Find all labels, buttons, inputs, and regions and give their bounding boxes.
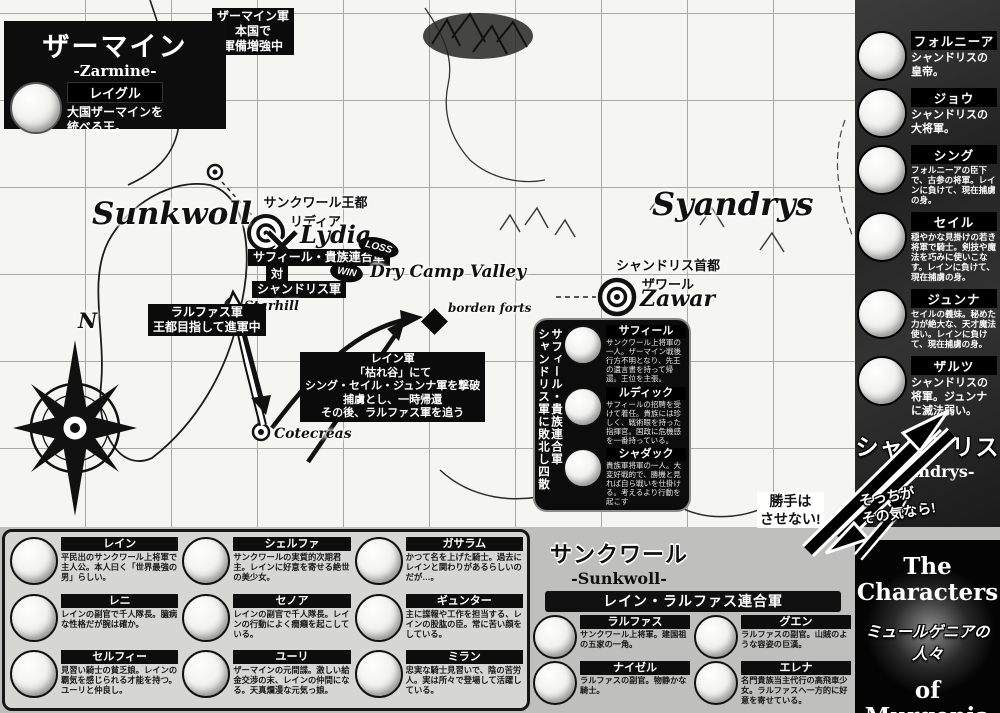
character-desc-reni: レインの副官で千人隊長。臆病な性格だが腕は確か。 [61,609,178,629]
nobles-entry-safir: サフィール サンクワール上将軍の一人。ザーマイン戦後行方不明となり、先王の遺言書… [563,325,686,383]
nobles-title-line1: サフィール・貴族連合軍 [549,328,562,506]
character-desc-gasaram: かつて名を上げた騎士。過去にレインと関わりがあるらしいのだが…。 [406,552,523,582]
character-desc-elena: 名門貴族当主代行の高飛車少女。ラルファスへ一方的に好意を寄せている。 [741,676,851,705]
nobles-alliance-box: サフィール・貴族連合軍 シャンドリス軍に敗北し四散 サフィール サンクワール上将… [533,318,691,512]
character-desc-reigle: 大国ザーマインを 統べる王。 [67,105,163,135]
entry-gwen: グエン ラルファスの副官。山賊のような容姿の巨漢。 [694,615,851,660]
entry-yuri: ユーリ ザーマインの元間諜。激しい給金交渉の末、レインの仲間になる。天真爛漫な元… [182,650,350,705]
region-label-syandrys: Syandrys [652,185,814,223]
portrait-gunter [355,594,403,642]
portrait-gwen [694,615,738,659]
portrait-miran [355,650,403,698]
syandrys-sidebar: フォルニーア シャンドリスの皇帝。 ジョウ シャンドリスの大将軍。 シング フォ… [855,0,1000,540]
character-desc-rain: 平民出のサンクワール上将軍で主人公。本人曰く「世界最強の男」らしい。 [61,552,178,582]
entry-gasaram: ガサラム かつて名を上げた騎士。過去にレインと関わりがあるらしいのだが…。 [355,537,523,592]
character-name-rain: レイン [61,537,178,551]
character-desc-gunter: 主に諜報や工作を担当する、レインの股肱の臣。常に苦い顔をしている。 [406,609,523,639]
character-name-safir: サフィール [606,325,686,338]
sunkwoll-subtitle: -Sunkwoll- [535,569,703,588]
rain-ralphas-grid: ラルファス サンクワール上将軍。建国祖の五家の一角。 グエン ラルファスの副官。… [533,615,851,711]
character-name-yuri: ユーリ [233,650,350,664]
character-desc-yuri: ザーマインの元間諜。激しい給金交渉の末、レインの仲間になる。天真爛漫な元気っ娘。 [233,665,350,695]
sunkwoll-character-panel: レイン 平民出のサンクワール上将軍で主人公。本人曰く「世界最強の男」らしい。 シ… [2,529,530,711]
character-desc-naizel: ラルファスの副官。物静かな騎士。 [580,676,690,696]
character-name-gunter: ギュンター [406,594,523,608]
portrait-reigle [10,82,62,134]
portrait-serufi [10,650,58,698]
rain-ralphas-title-bar: レイン・ラルファス連合軍 [545,591,841,612]
sidebar-entry-jou: ジョウ シャンドリスの大将軍。 [855,85,1000,142]
character-name-gasaram: ガサラム [406,537,523,551]
nobles-vertical-title: サフィール・貴族連合軍 シャンドリス軍に敗北し四散 [535,320,563,510]
portrait-gasaram [355,537,403,585]
character-desc-senoa: レインの副官で千人隊長。レインの行動によく癇癪を起こしている。 [233,609,350,639]
character-name-rudick: ルディック [606,387,686,400]
character-desc-ralphas: サンクワール上将軍。建国祖の五家の一角。 [580,630,690,650]
note-rain-army: レイン軍 「枯れ谷」にて シング・セイル・ジュンナ軍を撃破 捕虜とし、一時帰還 … [300,352,485,422]
portrait-junna [857,289,907,339]
nobles-entry-rudick: ルディック サフィールの招聘を受けて着任。貴族には珍しく、戦術眼を持った指揮官。… [563,387,686,445]
mountain-mass [423,13,533,59]
character-name-shadack: シャダック [606,448,686,461]
entry-serufi: セルフィー 見習い騎士の貧乏娘。レインの覇気を感じられる才能を持つ。ユーリと仲良… [10,650,178,705]
entry-gunter: ギュンター 主に諜報や工作を担当する、レインの股肱の臣。常に苦い顔をしている。 [355,594,523,649]
portrait-rain [10,537,58,585]
nobles-entry-shadack: シャダック 貴族軍将軍の一人。大変好戦的で、勝機と見れば自ら戦いを仕掛ける。考え… [563,448,686,506]
place-label-dry-camp-valley: Dry Camp Valley [370,262,526,282]
entry-reni: レニ レインの副官で千人隊長。臆病な性格だが腕は確か。 [10,594,178,649]
compass-n-label: N [78,308,97,333]
sidebar-entry-junna: ジュンナ セイルの義妹。秘めた力が絶大な、天才魔法使い。レインに負けて、現在捕虜… [855,286,1000,353]
zarmine-subtitle: -Zarmine- [4,64,226,79]
character-name-fornia: フォルニーア [911,31,997,50]
sidebar-entry-zarts: ザルツ シャンドリスの将軍。ジュンナに滅法弱い。 [855,353,1000,422]
entry-sherufa: シェルファ サンクワールの実質的次期君主。レインに好意を寄せる絶世の美少女。 [182,537,350,592]
portrait-fornia [857,31,907,81]
battle-side-b-label: シャンドリス軍 [252,281,346,298]
footer-title-en-bottom: of Murgenia [855,678,1000,713]
character-name-sherufa: シェルファ [233,537,350,551]
character-name-gwen: グエン [741,615,851,629]
footer-title-en-top: The Characters [855,554,1000,606]
character-name-senoa: セノア [233,594,350,608]
syandrys-title: シャンドリス [855,428,1000,462]
character-desc-shadack: 貴族軍将軍の一人。大変好戦的で、勝機と見れば自ら戦いを仕掛ける。考えるより行動を… [606,461,686,506]
note-ralphas-army: ラルファス軍 王都目指して進軍中 [148,304,266,336]
zarmine-infobox: ザーマイン -Zarmine- レイグル 大国ザーマインを 統べる王。 [4,21,226,129]
entry-ralphas: ラルファス サンクワール上将軍。建国祖の五家の一角。 [533,615,690,660]
fort-marker-diamond [421,308,448,335]
character-name-seil: セイル [911,212,997,231]
portrait-elena [694,661,738,705]
portrait-safir [563,325,603,365]
zarmine-title: ザーマイン [4,25,226,64]
character-name-zarts: ザルツ [911,356,997,375]
character-desc-jou: シャンドリスの大将軍。 [911,108,997,136]
footer-title-jp: ミュールゲニアの人々 [855,620,1000,664]
character-name-reigle: レイグル [67,82,163,103]
nobles-title-line2: シャンドリス軍に敗北し四散 [536,328,549,506]
character-desc-safir: サンクワール上将軍の一人。ザーマイン戦後行方不明となり、先王の遺言書を持って帰還… [606,338,686,383]
sunkwoll-title: サンクワール [535,537,703,569]
entry-elena: エレナ 名門貴族当主代行の高飛車少女。ラルファスへ一方的に好意を寄せている。 [694,661,851,712]
character-name-miran: ミラン [406,650,523,664]
character-desc-shing: フォルニーアの臣下で、古参の将軍。レインに負けて、現在捕虜の身。 [911,165,997,205]
character-name-reni: レニ [61,594,178,608]
entry-naizel: ナイゼル ラルファスの副官。物静かな騎士。 [533,661,690,712]
place-label-borden-forts: borden forts [448,301,531,315]
character-desc-junna: セイルの義妹。秘めた力が絶大な、天才魔法使い。レインに負けて、現在捕虜の身。 [911,309,997,349]
character-desc-miran: 忠実な騎士見習いで、陰の苦労人。実は所々で登場して活躍している。 [406,665,523,695]
character-desc-gwen: ラルファスの副官。山賊のような容姿の巨漢。 [741,630,851,650]
character-name-naizel: ナイゼル [580,661,690,675]
character-name-serufi: セルフィー [61,650,178,664]
character-name-shing: シング [911,145,997,164]
portrait-shadack [563,448,603,488]
portrait-zarts [857,356,907,406]
portrait-seil [857,212,907,262]
portrait-ralphas [533,615,577,659]
region-label-sunkwoll: Sunkwoll [92,196,252,232]
character-name-junna: ジュンナ [911,289,997,308]
entry-senoa: セノア レインの副官で千人隊長。レインの行動によく癇癪を起こしている。 [182,594,350,649]
speech-bubble-left: 勝手は させない! [757,492,824,528]
sunkwoll-heading: サンクワール -Sunkwoll- [535,537,703,588]
character-name-jou: ジョウ [911,88,997,107]
character-name-ralphas: ラルファス [580,615,690,629]
portrait-naizel [533,661,577,705]
entry-rain: レイン 平民出のサンクワール上将軍で主人公。本人曰く「世界最強の男」らしい。 [10,537,178,592]
character-desc-seil: 穏やかな見掛けの若き将軍で騎士。剣技や魔法を巧みに使いこなす。レインに負けて、現… [911,232,997,282]
compass-rose [13,340,137,516]
sidebar-entry-shing: シング フォルニーアの臣下で、古参の将軍。レインに負けて、現在捕虜の身。 [855,142,1000,209]
portrait-sherufa [182,537,230,585]
coastline-east [837,120,852,235]
sidebar-entry-fornia: フォルニーア シャンドリスの皇帝。 [855,28,1000,85]
capital-label-zawar-en: Zawar [640,286,715,312]
character-desc-fornia: シャンドリスの皇帝。 [911,51,997,79]
town-marker-north [208,165,222,179]
character-desc-sherufa: サンクワールの実質的次期君主。レインに好意を寄せる絶世の美少女。 [233,552,350,582]
character-name-elena: エレナ [741,661,851,675]
character-desc-serufi: 見習い騎士の貧乏娘。レインの覇気を感じられる才能を持つ。ユーリと仲良し。 [61,665,178,695]
book-page: Sunkwoll Syandrys N サンクワール王都 リディア Lydia … [0,0,1000,713]
portrait-senoa [182,594,230,642]
syandrys-heading: シャンドリス -Syandrys- [855,428,1000,481]
sidebar-entry-seil: セイル 穏やかな見掛けの若き将軍で騎士。剣技や魔法を巧みに使いこなす。レインに負… [855,209,1000,286]
syandrys-subtitle: -Syandrys- [855,462,1000,481]
portrait-reni [10,594,58,642]
character-desc-rudick: サフィールの招聘を受けて着任。貴族には珍しく、戦術眼を持った指揮官。国政に危機感… [606,400,686,445]
characters-title-box: The Characters ミュールゲニアの人々 of Murgenia [855,540,1000,713]
character-desc-zarts: シャンドリスの将軍。ジュンナに滅法弱い。 [911,376,997,418]
town-marker-cotecreas [253,424,269,440]
portrait-yuri [182,650,230,698]
portrait-shing [857,145,907,195]
portrait-rudick [563,387,603,427]
entry-miran: ミラン 忠実な騎士見習いで、陰の苦労人。実は所々で登場して活躍している。 [355,650,523,705]
portrait-jou [857,88,907,138]
place-label-cotecreas: Cotecreas [274,426,352,442]
